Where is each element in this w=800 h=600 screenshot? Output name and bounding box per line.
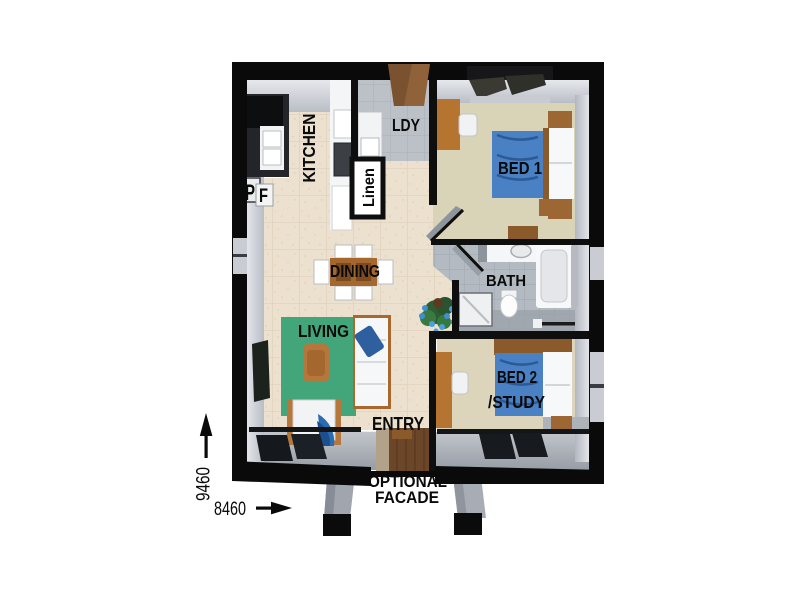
- svg-text:P: P: [245, 180, 255, 205]
- svg-text:LIVING: LIVING: [298, 321, 349, 341]
- svg-text:BED 1: BED 1: [498, 158, 542, 178]
- svg-text:ENTRY: ENTRY: [372, 414, 424, 434]
- svg-text:Linen: Linen: [361, 168, 378, 207]
- svg-text:BED 2: BED 2: [497, 367, 537, 387]
- svg-text:F: F: [259, 186, 268, 207]
- svg-text:BATH: BATH: [486, 273, 526, 290]
- svg-text:9460: 9460: [193, 467, 215, 501]
- svg-text:8460: 8460: [214, 498, 246, 520]
- svg-text:LDY: LDY: [392, 115, 420, 135]
- svg-text:/STUDY: /STUDY: [488, 392, 545, 412]
- svg-text:DINING: DINING: [330, 261, 380, 281]
- svg-text:KITCHEN: KITCHEN: [299, 114, 319, 183]
- svg-text:FACADE: FACADE: [375, 488, 439, 507]
